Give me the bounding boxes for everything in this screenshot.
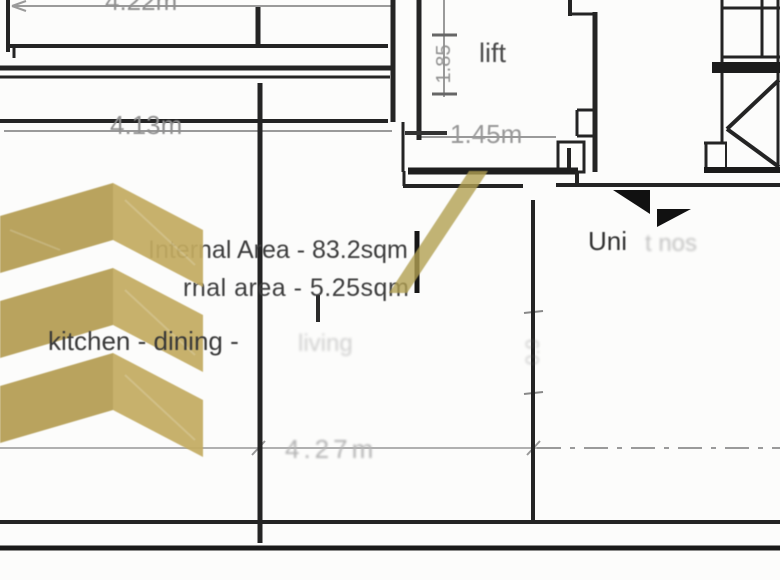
unit-label: Uni <box>588 228 627 254</box>
corridor-width-dimension: 4.13m <box>110 112 182 138</box>
lift-depth-dimension: 1.85 <box>414 34 474 94</box>
right-opening-dimension: 0.9 <box>503 322 563 382</box>
room-width-dimension: 4.27m <box>285 436 377 462</box>
top-width-dimension: 4.22m <box>105 0 177 14</box>
room-name-label: kitchen - dining - <box>48 328 239 354</box>
unit-faint-label: t nos <box>645 232 697 256</box>
lift-door-width-dimension: 1.45m <box>450 121 522 147</box>
diagonal-beam <box>389 171 488 293</box>
gold-watermark <box>0 0 780 580</box>
room-name-faint-label: living <box>298 332 353 356</box>
lift-label: lift <box>479 40 506 67</box>
floor-plan-image: Internal Area - 83.2sqm rnal area - 5.25… <box>0 0 780 580</box>
chevron-bands <box>0 183 203 457</box>
